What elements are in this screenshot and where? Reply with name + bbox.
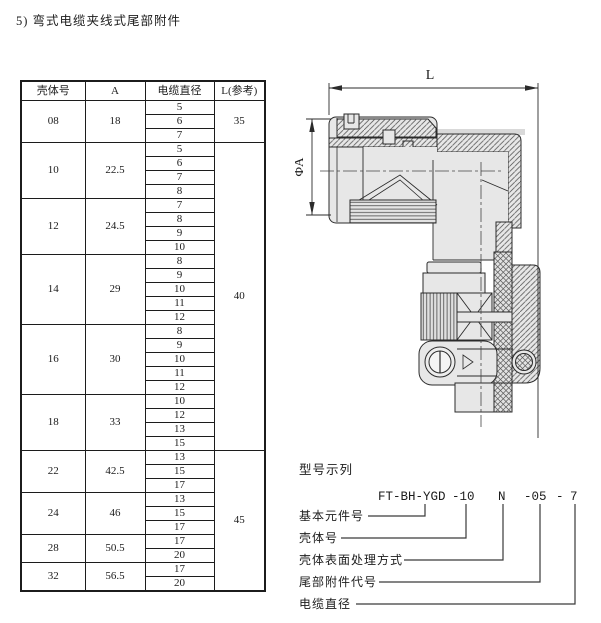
label-base-component: 基本元件号 [299, 509, 364, 523]
cable-diameter-cell: 11 [145, 367, 214, 381]
l-reference-cell: 40 [214, 143, 265, 451]
cable-diameter-cell: 8 [145, 255, 214, 269]
cable-diameter-cell: 17 [145, 535, 214, 549]
model-labels: 基本元件号 壳体号 壳体表面处理方式 尾部附件代号 电缆直径 [299, 509, 403, 611]
a-value-cell: 50.5 [85, 535, 145, 563]
cable-diameter-cell: 13 [145, 423, 214, 437]
header-l-reference: L(参考) [214, 81, 265, 101]
header-cable-diameter: 电缆直径 [145, 81, 214, 101]
code-cable: 7 [570, 490, 578, 504]
cable-diameter-cell: 6 [145, 157, 214, 171]
a-value-cell: 30 [85, 325, 145, 395]
code-finish: N [498, 490, 506, 504]
label-cable-diameter: 电缆直径 [299, 597, 351, 611]
cable-diameter-cell: 13 [145, 493, 214, 507]
connector-body [329, 114, 540, 412]
code-tail: -05 [524, 490, 547, 504]
a-value-cell: 24.5 [85, 199, 145, 255]
shell-number-cell: 32 [21, 563, 85, 592]
a-value-cell: 22.5 [85, 143, 145, 199]
code-base: FT-BH-YGD [378, 490, 446, 504]
l-reference-cell: 45 [214, 451, 265, 592]
cable-diameter-cell: 10 [145, 395, 214, 409]
cable-diameter-cell: 17 [145, 479, 214, 493]
model-code: FT-BH-YGD -10 N -05 - 7 [378, 490, 578, 504]
code-shell: -10 [452, 490, 475, 504]
cable-diameter-cell: 8 [145, 325, 214, 339]
shell-number-cell: 14 [21, 255, 85, 325]
cable-diameter-cell: 5 [145, 143, 214, 157]
document-page: 5) 弯式电缆夹线式尾部附件 壳体号 A 电缆直径 L(参考) 08185356… [0, 0, 601, 623]
shell-number-cell: 12 [21, 199, 85, 255]
a-value-cell: 56.5 [85, 563, 145, 592]
cable-diameter-cell: 10 [145, 283, 214, 297]
label-tail-accessory: 尾部附件代号 [299, 574, 377, 589]
cable-diameter-cell: 12 [145, 311, 214, 325]
a-value-cell: 42.5 [85, 451, 145, 493]
cable-diameter-cell: 7 [145, 129, 214, 143]
cable-diameter-cell: 13 [145, 451, 214, 465]
cable-diameter-cell: 6 [145, 115, 214, 129]
cable-diameter-cell: 12 [145, 409, 214, 423]
cable-diameter-cell: 15 [145, 507, 214, 521]
shell-number-cell: 24 [21, 493, 85, 535]
header-a: A [85, 81, 145, 101]
cable-diameter-cell: 11 [145, 297, 214, 311]
a-value-cell: 33 [85, 395, 145, 451]
cable-diameter-cell: 9 [145, 339, 214, 353]
cable-diameter-cell: 8 [145, 185, 214, 199]
cable-diameter-cell: 12 [145, 381, 214, 395]
cable-diameter-cell: 7 [145, 171, 214, 185]
cable-diameter-cell: 5 [145, 101, 214, 115]
cable-diameter-cell: 9 [145, 227, 214, 241]
shell-number-cell: 22 [21, 451, 85, 493]
table-row: 0818535 [21, 101, 265, 115]
shell-number-cell: 08 [21, 101, 85, 143]
table-header-row: 壳体号 A 电缆直径 L(参考) [21, 81, 265, 101]
dimension-phi-a: ΦA [295, 119, 331, 215]
table-row: 2242.51345 [21, 451, 265, 465]
model-example: 型号示列 FT-BH-YGD -10 N -05 - 7 基本元件号 壳体号 壳… [290, 455, 601, 623]
cable-diameter-cell: 10 [145, 353, 214, 367]
a-value-cell: 46 [85, 493, 145, 535]
spec-table: 壳体号 A 电缆直径 L(参考) 0818535671022.554067812… [20, 80, 266, 592]
a-value-cell: 29 [85, 255, 145, 325]
shell-number-cell: 18 [21, 395, 85, 451]
a-value-cell: 18 [85, 101, 145, 143]
cable-diameter-cell: 8 [145, 213, 214, 227]
shell-number-cell: 16 [21, 325, 85, 395]
label-surface-finish: 壳体表面处理方式 [299, 552, 403, 567]
table-row: 1022.5540 [21, 143, 265, 157]
cable-diameter-cell: 7 [145, 199, 214, 213]
cable-diameter-cell: 17 [145, 563, 214, 577]
header-shell: 壳体号 [21, 81, 85, 101]
model-heading: 型号示列 [299, 463, 353, 477]
cable-diameter-cell: 15 [145, 465, 214, 479]
connector-drawing: L ΦA [295, 55, 601, 445]
shell-number-cell: 10 [21, 143, 85, 199]
dim-l-label: L [426, 68, 435, 83]
cable-diameter-cell: 10 [145, 241, 214, 255]
section-title: 5) 弯式电缆夹线式尾部附件 [16, 10, 181, 29]
l-reference-cell: 35 [214, 101, 265, 143]
cable-diameter-cell: 15 [145, 437, 214, 451]
cable-diameter-cell: 20 [145, 577, 214, 592]
code-separator: - [556, 490, 564, 504]
cable-diameter-cell: 9 [145, 269, 214, 283]
cable-diameter-cell: 20 [145, 549, 214, 563]
dim-phi-a-label: ΦA [295, 157, 306, 177]
shell-number-cell: 28 [21, 535, 85, 563]
cable-diameter-cell: 17 [145, 521, 214, 535]
label-shell-number: 壳体号 [299, 531, 338, 545]
